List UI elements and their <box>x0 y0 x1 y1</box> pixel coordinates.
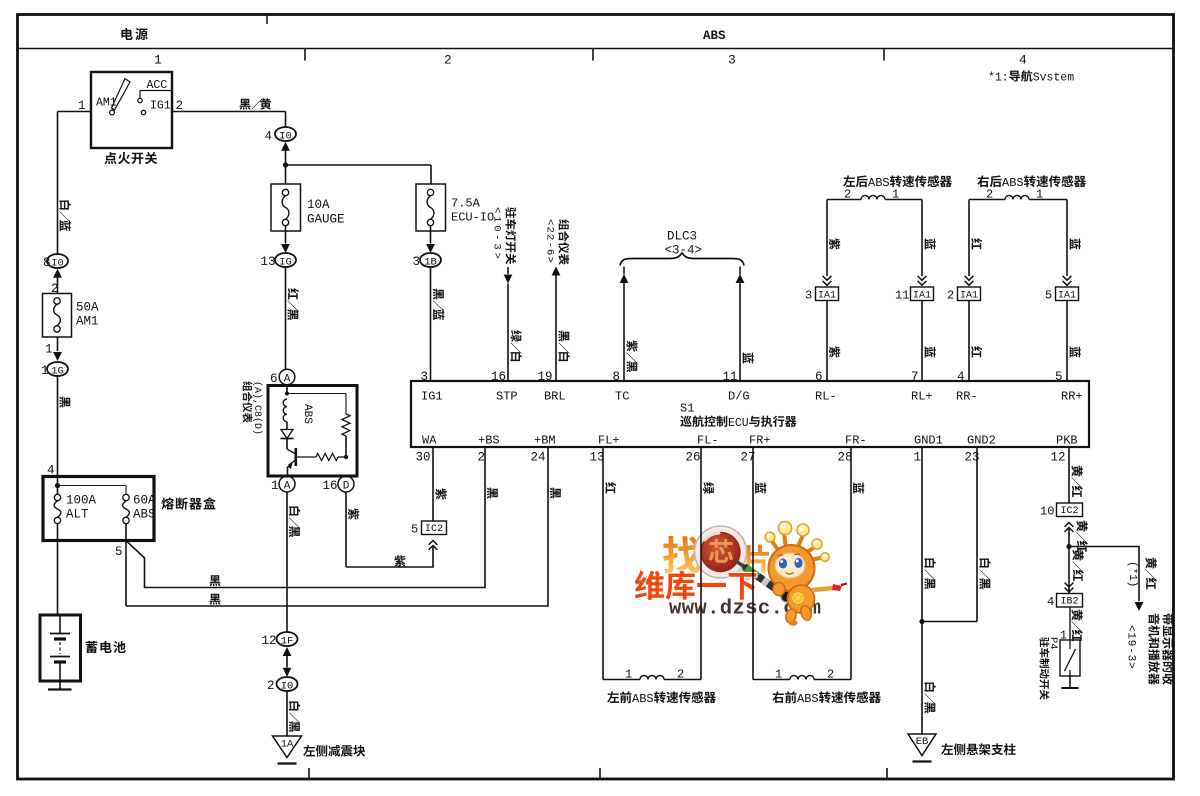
svg-text:2: 2 <box>677 668 684 682</box>
svg-text:2: 2 <box>478 451 486 465</box>
svg-text:5: 5 <box>1045 289 1052 303</box>
svg-text:30: 30 <box>416 451 431 465</box>
svg-text:ECU-IO: ECU-IO <box>451 211 494 225</box>
svg-text:ABS: ABS <box>133 508 156 522</box>
svg-text:16: 16 <box>323 479 338 493</box>
svg-text:+BM: +BM <box>534 434 556 448</box>
svg-text:12: 12 <box>1051 451 1066 465</box>
svg-text:1: 1 <box>45 343 53 357</box>
svg-text:ECU: ECU <box>728 417 749 430</box>
svg-text:FR-: FR- <box>845 434 867 448</box>
svg-text:1: 1 <box>78 99 86 113</box>
svg-text:RL-: RL- <box>815 390 837 404</box>
svg-text:RL+: RL+ <box>911 390 933 404</box>
svg-text:2: 2 <box>267 679 275 693</box>
svg-text:7.5A: 7.5A <box>451 197 481 211</box>
svg-text:RR+: RR+ <box>1061 390 1083 404</box>
svg-text:IA1: IA1 <box>1058 291 1076 302</box>
svg-text:IA1: IA1 <box>913 291 931 302</box>
svg-text:ABS: ABS <box>1002 176 1024 190</box>
svg-text:1: 1 <box>625 668 632 682</box>
svg-text:S1: S1 <box>680 402 694 416</box>
svg-text:1B: 1B <box>424 256 437 268</box>
svg-text:A: A <box>284 480 291 492</box>
svg-text:1: 1 <box>271 479 279 493</box>
svg-text:IC2: IC2 <box>1060 506 1078 517</box>
svg-text:2: 2 <box>827 668 834 682</box>
svg-text:ACC: ACC <box>147 79 168 92</box>
svg-text:D/G: D/G <box>728 390 750 404</box>
svg-text:FR+: FR+ <box>749 434 771 448</box>
svg-text:1: 1 <box>154 53 162 68</box>
svg-text:4: 4 <box>1019 53 1027 68</box>
svg-text:ALT: ALT <box>66 508 89 522</box>
svg-text:*1:: *1: <box>988 72 1009 85</box>
svg-text:50A: 50A <box>76 301 99 315</box>
svg-text:2: 2 <box>947 289 954 303</box>
svg-text:BRL: BRL <box>544 390 566 404</box>
svg-text:+BS: +BS <box>478 434 500 448</box>
svg-text:FL+: FL+ <box>598 434 620 448</box>
svg-text:<10-3>: <10-3> <box>491 207 503 262</box>
svg-text:24: 24 <box>531 451 546 465</box>
svg-text:26: 26 <box>686 451 701 465</box>
svg-text:DLC3: DLC3 <box>667 230 697 244</box>
svg-text:RR-: RR- <box>956 390 978 404</box>
svg-text:4: 4 <box>265 130 273 144</box>
svg-text:ABS: ABS <box>703 29 726 43</box>
svg-text:6: 6 <box>270 372 278 386</box>
svg-text:ABS: ABS <box>301 404 313 424</box>
svg-text:<19-3>: <19-3> <box>1125 625 1137 669</box>
svg-text:IB2: IB2 <box>1060 597 1078 608</box>
svg-text:STP: STP <box>496 390 518 404</box>
svg-text:(*1): (*1) <box>1126 561 1138 587</box>
svg-text:Svstem: Svstem <box>1033 72 1075 85</box>
svg-text:IA1: IA1 <box>960 291 978 302</box>
svg-text:2: 2 <box>444 53 452 68</box>
svg-text:IG1: IG1 <box>421 390 443 404</box>
svg-text:13: 13 <box>261 255 276 269</box>
svg-text:(A),C8(D): (A),C8(D) <box>251 381 263 435</box>
svg-text:5: 5 <box>115 545 123 559</box>
svg-text:10: 10 <box>1040 505 1054 519</box>
svg-text:2: 2 <box>176 99 184 113</box>
svg-text:ABS: ABS <box>797 692 819 706</box>
svg-text:1G: 1G <box>51 365 64 377</box>
svg-text:100A: 100A <box>66 494 97 508</box>
svg-text:60A: 60A <box>133 494 156 508</box>
svg-text:2: 2 <box>844 188 851 202</box>
svg-text:3: 3 <box>805 289 812 303</box>
svg-text:GAUGE: GAUGE <box>307 213 345 227</box>
svg-text:WA: WA <box>422 434 437 448</box>
svg-text:GND1: GND1 <box>914 434 943 448</box>
svg-text:1: 1 <box>914 451 922 465</box>
svg-text:EB: EB <box>916 736 929 748</box>
svg-text:PKB: PKB <box>1056 434 1078 448</box>
svg-text:11: 11 <box>895 289 909 303</box>
svg-text:5: 5 <box>411 523 418 537</box>
svg-text:2: 2 <box>986 188 993 202</box>
svg-text:IA1: IA1 <box>818 291 836 302</box>
svg-text:FL-: FL- <box>697 434 719 448</box>
svg-text:10A: 10A <box>307 198 330 212</box>
svg-text:AM1: AM1 <box>76 315 99 329</box>
svg-text:ABS: ABS <box>632 692 654 706</box>
svg-text:TC: TC <box>615 390 629 404</box>
svg-text:IC2: IC2 <box>425 524 443 535</box>
svg-text:D: D <box>343 480 350 492</box>
svg-text:1F: 1F <box>281 635 294 647</box>
svg-text:1: 1 <box>1036 188 1043 202</box>
svg-text:3: 3 <box>728 53 736 68</box>
svg-text:1: 1 <box>892 188 899 202</box>
svg-text:I0: I0 <box>51 257 64 269</box>
svg-text:1: 1 <box>775 668 782 682</box>
svg-text:I0: I0 <box>281 680 294 692</box>
svg-text:<22-6>: <22-6> <box>544 219 556 264</box>
svg-text:4: 4 <box>1047 595 1054 609</box>
svg-text:AM1: AM1 <box>96 97 117 110</box>
svg-text:12: 12 <box>262 634 277 648</box>
svg-text:IG1: IG1 <box>150 100 171 113</box>
svg-text:GND2: GND2 <box>967 434 996 448</box>
svg-text:1A: 1A <box>281 739 294 751</box>
svg-text:I0: I0 <box>279 130 292 142</box>
svg-text:IG: IG <box>279 256 292 268</box>
svg-text:A: A <box>284 373 291 385</box>
svg-text:3: 3 <box>413 255 421 269</box>
svg-text:ABS: ABS <box>868 176 890 190</box>
